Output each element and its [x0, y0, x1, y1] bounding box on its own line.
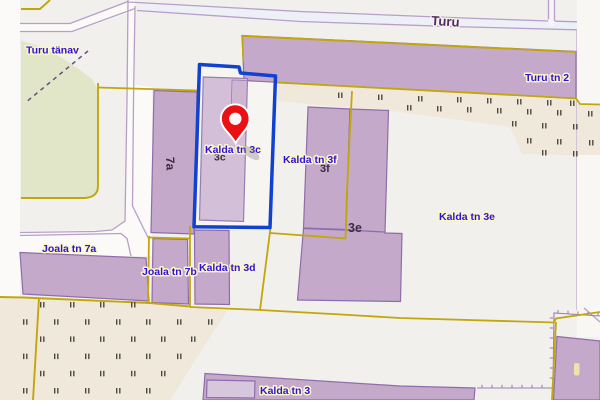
- svg-text:Kalda tn 3: Kalda tn 3: [260, 385, 310, 397]
- svg-text:Joala tn 7b: Joala tn 7b: [142, 266, 197, 278]
- svg-text:7a: 7a: [163, 157, 177, 171]
- svg-text:Joala tn 7a: Joala tn 7a: [42, 243, 96, 255]
- svg-text:Turu tn 2: Turu tn 2: [525, 72, 569, 84]
- svg-text:Kalda tn 3e: Kalda tn 3e: [439, 211, 495, 223]
- svg-text:Kalda tn 3f: Kalda tn 3f: [283, 154, 337, 166]
- svg-text:3e: 3e: [348, 221, 362, 235]
- svg-text:Turu tänav: Turu tänav: [26, 45, 79, 57]
- svg-text:Turu: Turu: [431, 13, 460, 30]
- svg-text:Kalda tn 3d: Kalda tn 3d: [199, 262, 256, 274]
